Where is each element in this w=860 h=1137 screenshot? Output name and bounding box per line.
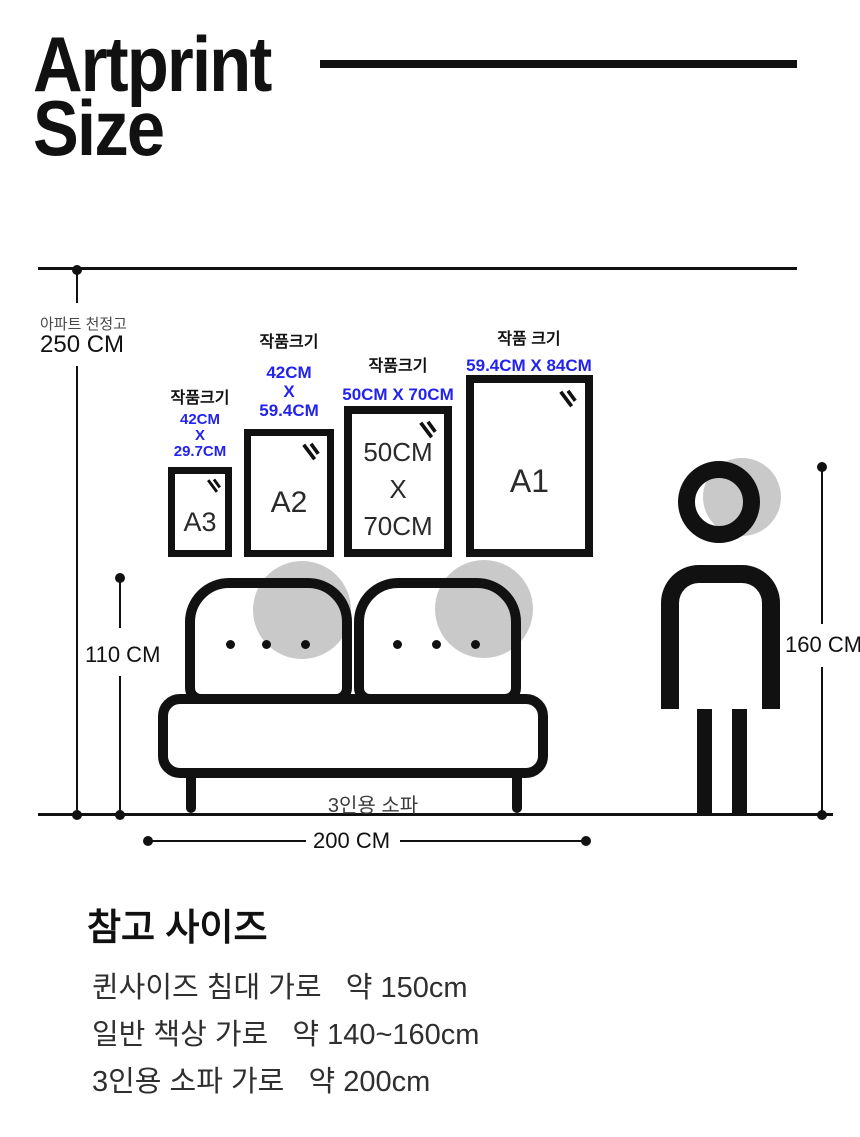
sofa-height-line-upper (119, 578, 121, 628)
frame-50x70: 50CMX70CM (344, 406, 452, 557)
reference-item-sofa: 3인용 소파 가로 약 200cm (92, 1058, 430, 1100)
frame-a1-caption-title: 작품 크기 (449, 325, 609, 349)
frame-a2-name: A2 (251, 486, 327, 520)
ceiling-value: 250 CM (40, 331, 124, 359)
sofa-height-line-lower (119, 676, 121, 815)
frame-50x70-name: 50CMX70CM (352, 434, 444, 545)
person-height-top-dot (817, 462, 827, 472)
glass-reflection-icon (301, 441, 321, 463)
frame-a3-name: A3 (175, 507, 225, 538)
ceiling-dim-top-dot (72, 265, 82, 275)
sofa-width-line-left (148, 840, 306, 842)
sofa-height-bottom-dot (115, 810, 125, 820)
reference-item-desk: 일반 책상 가로 약 140~160cm (92, 1011, 479, 1053)
frame-a1-caption: 작품 크기 59.4CM X 84CM (449, 325, 609, 376)
person-height-line-lower (821, 667, 823, 815)
frame-a2: A2 (244, 429, 334, 557)
cushion-button (393, 640, 402, 649)
person-leg-right (732, 709, 747, 813)
frame-a2-caption-title: 작품크기 (219, 328, 359, 352)
sofa-leg-left (186, 775, 196, 813)
cushion-button (471, 640, 480, 649)
glass-reflection-icon (206, 477, 222, 495)
sofa-width-line-right (400, 840, 586, 842)
person-torso (661, 565, 780, 709)
sofa-label: 3인용 소파 (303, 789, 443, 818)
sofa-width-right-dot (581, 836, 591, 846)
frame-a1-caption-size: 59.4CM X 84CM (449, 356, 609, 376)
person-leg-left (697, 709, 712, 813)
cushion-button (301, 640, 310, 649)
ceiling-dim-line-lower (76, 366, 78, 815)
reference-item-bed: 퀸사이즈 침대 가로 약 150cm (92, 964, 468, 1006)
sofa-width-left-dot (143, 836, 153, 846)
ceiling-line (38, 267, 797, 270)
cushion-button (432, 640, 441, 649)
title-rule (320, 60, 797, 68)
sofa-seat (158, 694, 548, 778)
frame-a1: A1 (466, 375, 593, 557)
page-title: ArtprintSize (33, 32, 271, 160)
sofa-width-value: 200 CM (313, 828, 390, 854)
glass-reflection-icon (558, 388, 578, 410)
page-title-line2: Size (33, 84, 163, 172)
person-height-bottom-dot (817, 810, 827, 820)
person-head (678, 461, 760, 543)
artprint-size-infographic: ArtprintSize 아파트 천정고 250 CM 작품크기 42CMX29… (0, 0, 860, 1137)
frame-50x70-caption-size: 50CM X 70CM (318, 385, 478, 405)
frame-a3: A3 (168, 467, 232, 557)
person-height-line-upper (821, 467, 823, 624)
ceiling-dim-bottom-dot (72, 810, 82, 820)
sofa-height-top-dot (115, 573, 125, 583)
sofa-height-value: 110 CM (85, 642, 160, 668)
person-height-value: 160 CM (785, 632, 860, 658)
reference-heading: 참고 사이즈 (87, 897, 267, 951)
cushion-button (226, 640, 235, 649)
cushion-button (262, 640, 271, 649)
sofa-leg-right (512, 775, 522, 813)
frame-a1-name: A1 (474, 463, 585, 500)
